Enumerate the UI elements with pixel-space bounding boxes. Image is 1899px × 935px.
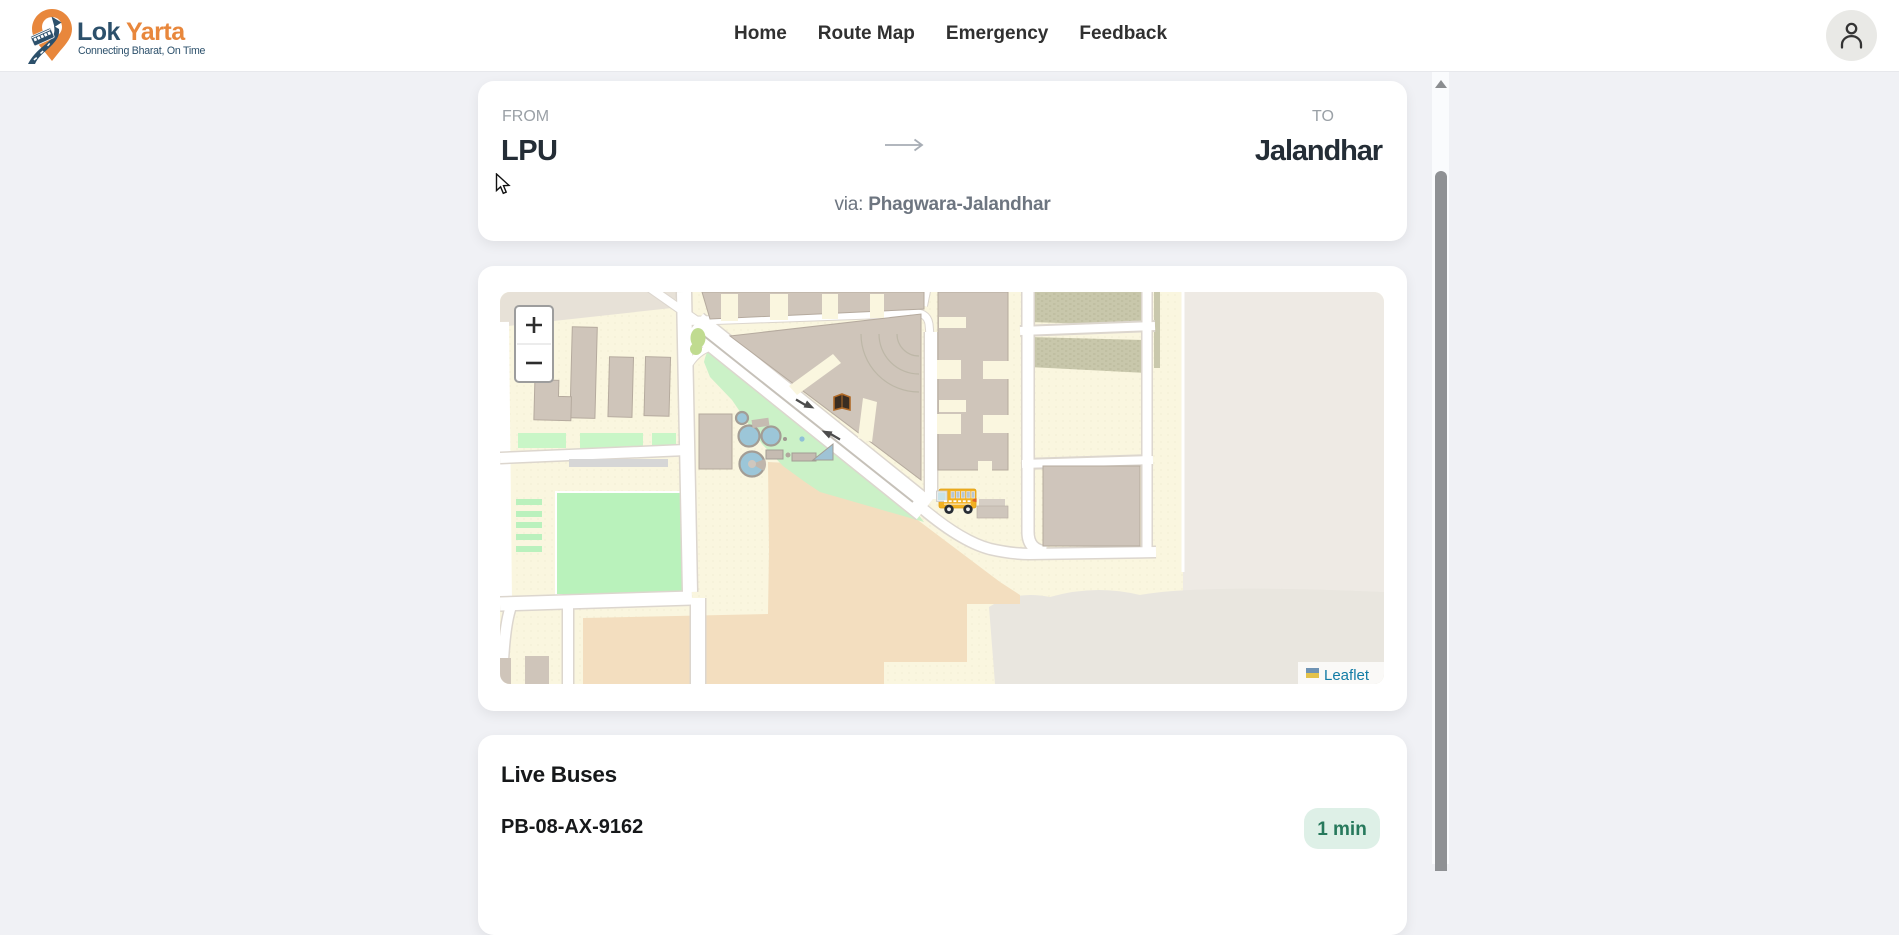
svg-text:Leaflet: Leaflet <box>1324 667 1370 684</box>
